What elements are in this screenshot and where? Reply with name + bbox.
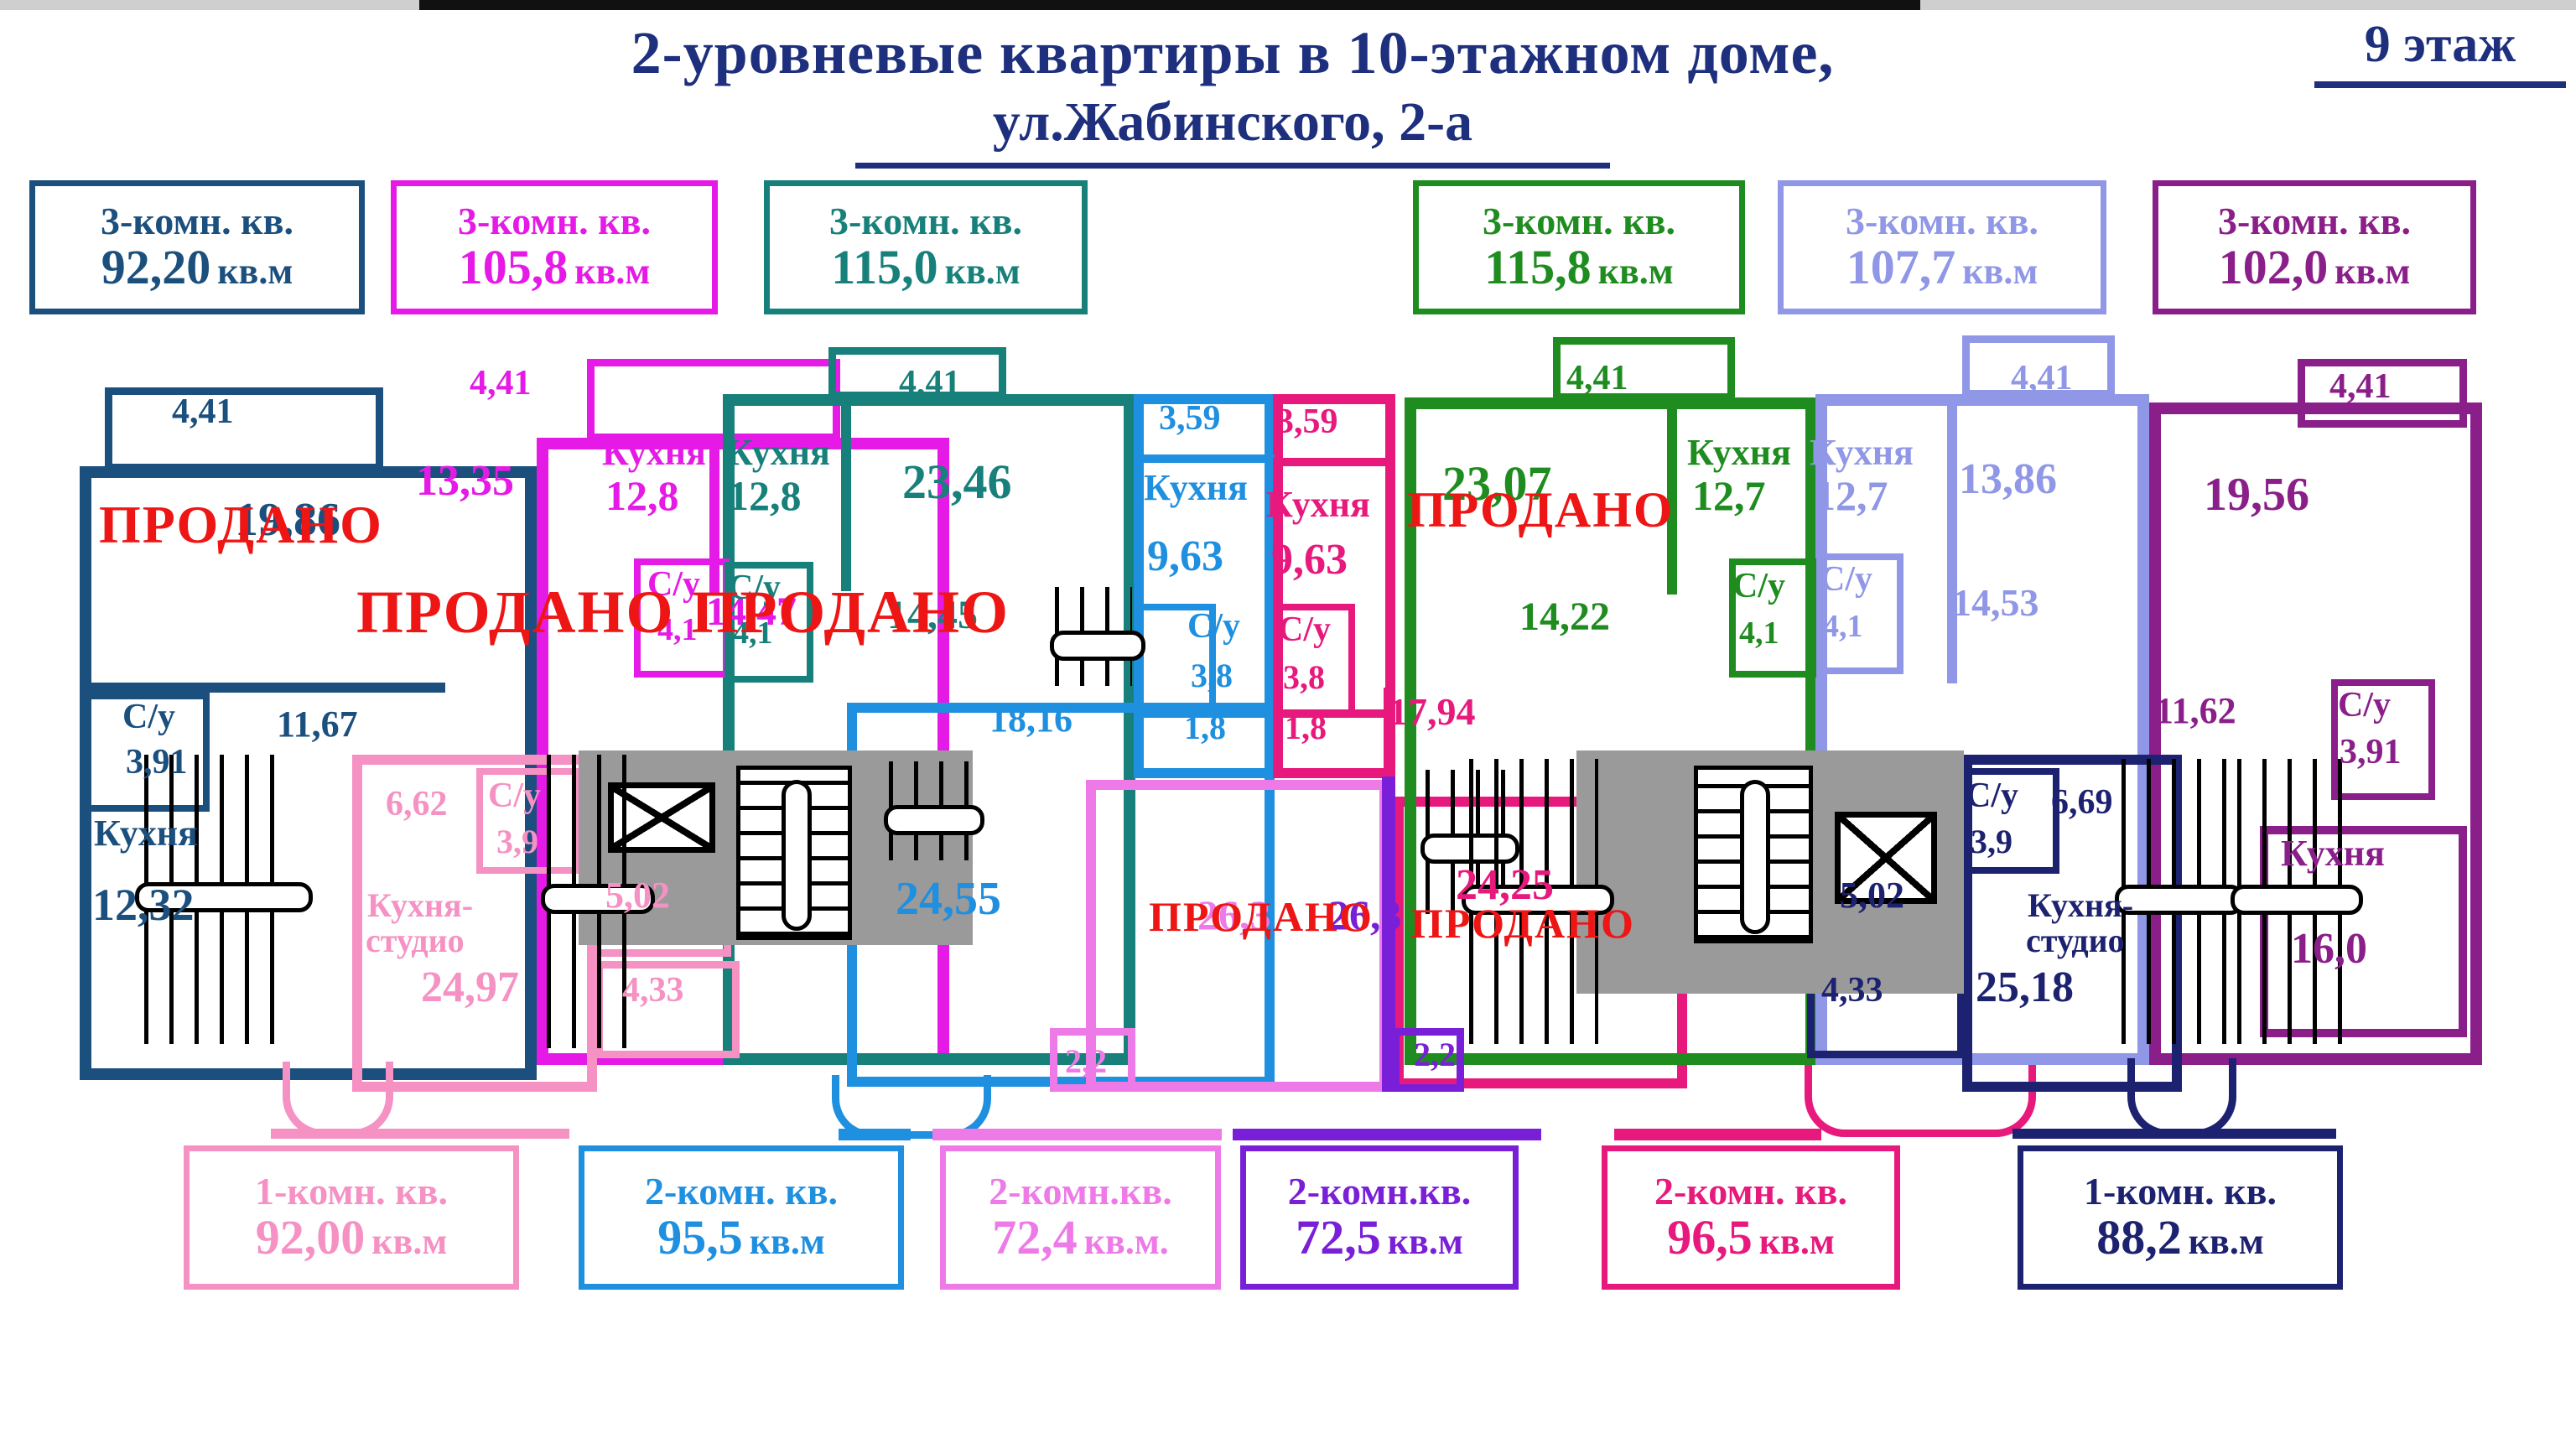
staircase-icon xyxy=(2237,759,2348,1044)
page-title-line2: ул.Жабинского, 2-а xyxy=(855,91,1610,169)
card-type: 3-комн. кв. xyxy=(1846,201,2038,241)
page-title-line1: 2-уровневые квартиры в 10-этажном доме, xyxy=(520,18,1945,88)
legend-card-1room-right: 1-комн. кв. 88,2кв.м xyxy=(2018,1145,2343,1290)
card-unit: кв.м xyxy=(2334,251,2410,292)
room-name-label: С/у xyxy=(1820,562,1872,597)
room-area-label: 12,8 xyxy=(728,475,802,517)
handrail xyxy=(2115,885,2243,915)
facade-line xyxy=(2012,1129,2336,1139)
card-area: 92,20 xyxy=(101,240,211,294)
card-type: 3-комн. кв. xyxy=(101,201,293,241)
room-area-label: 3,8 xyxy=(1283,661,1325,694)
card-type: 1-комн. кв. xyxy=(255,1171,448,1212)
facade-line xyxy=(1614,1129,1821,1140)
room-name-label: С/у xyxy=(1966,778,2018,813)
card-type: 2-комн. кв. xyxy=(1654,1171,1847,1212)
room-area-label: 19,56 xyxy=(2204,471,2309,518)
room-name-label: студио xyxy=(366,924,465,958)
room-name-label: Кухня xyxy=(1144,470,1248,506)
room-area-label: 6,62 xyxy=(386,787,448,822)
room-area-label: 9,63 xyxy=(1271,538,1348,582)
room-name-label: С/у xyxy=(488,778,541,813)
card-type: 3-комн. кв. xyxy=(2218,201,2411,241)
facade-line xyxy=(271,1129,569,1139)
legend-card-2room-4: 2-комн. кв. 96,5кв.м xyxy=(1602,1145,1900,1290)
bay-window xyxy=(2127,1058,2236,1137)
room-area-label: 18,16 xyxy=(989,701,1072,738)
sold-overlay: ПРОДАНО xyxy=(1149,896,1374,937)
room-area-label: 4,41 xyxy=(2011,361,2073,396)
room-area-label: 4,33 xyxy=(622,973,684,1008)
handrail xyxy=(2231,885,2363,915)
staircase-icon xyxy=(889,761,971,860)
card-unit: кв.м xyxy=(1388,1221,1463,1262)
card-unit: кв.м xyxy=(945,251,1021,292)
room-area-label: 11,67 xyxy=(277,706,358,743)
room-area-label: 12,32 xyxy=(92,882,195,927)
staircase-icon xyxy=(2122,759,2229,1044)
room-area-label: 1,8 xyxy=(1184,711,1226,745)
card-unit: кв.м xyxy=(2189,1221,2264,1262)
card-unit: кв.м xyxy=(1598,251,1674,292)
card-area: 102,0 xyxy=(2219,240,2329,294)
staircase-icon xyxy=(1055,587,1132,686)
legend-card-3room-3: 3-комн. кв. 115,0кв.м xyxy=(764,180,1088,314)
wall xyxy=(90,683,445,693)
sold-overlay: ПРОДАНО ПРОДАНО xyxy=(356,582,1010,642)
room-area-label: 4,41 xyxy=(470,366,532,401)
card-type: 3-комн. кв. xyxy=(1483,201,1675,241)
sold-overlay: ПРОДАНО xyxy=(1407,485,1675,535)
room-area-label: 12,7 xyxy=(1692,475,1766,517)
room-area-label: 4,41 xyxy=(899,366,961,401)
legend-card-3room-2: 3-комн. кв. 105,8кв.м xyxy=(391,180,718,314)
wall xyxy=(1134,454,1275,463)
card-type: 2-комн.кв. xyxy=(1288,1171,1472,1212)
room-area-label: 14,22 xyxy=(1519,597,1610,637)
card-unit: кв.м xyxy=(371,1221,447,1262)
room-area-label: 3,9 xyxy=(496,825,538,859)
room-name-label: Кухня xyxy=(1687,434,1791,471)
room-area-label: 24,97 xyxy=(421,966,519,1010)
room-area-label: 23,46 xyxy=(902,458,1012,506)
legend-card-2room-3: 2-комн.кв. 72,5кв.м xyxy=(1240,1145,1519,1290)
room-name-label: Кухня xyxy=(2281,835,2385,872)
facade-line xyxy=(932,1129,1222,1140)
room-area-label: 24,55 xyxy=(896,875,1001,922)
room-area-label: 17,94 xyxy=(1389,693,1476,731)
room-area-label: 4,41 xyxy=(1566,361,1628,396)
card-area: 95,5 xyxy=(657,1210,743,1265)
wall xyxy=(1273,458,1395,466)
facade-line xyxy=(1233,1129,1541,1140)
wall xyxy=(1947,394,1957,683)
card-unit: кв.м xyxy=(574,251,650,292)
room-name-label: Кухня xyxy=(1266,486,1370,523)
room-name-label: Кухня xyxy=(94,815,198,852)
room-area-label: 5,02 xyxy=(1840,877,1904,914)
card-area: 115,0 xyxy=(831,240,937,294)
room-name-label: Кухня xyxy=(1810,434,1914,471)
card-unit: кв.м xyxy=(217,251,293,292)
card-type: 3-комн. кв. xyxy=(829,201,1022,241)
card-unit: кв.м. xyxy=(1084,1221,1169,1262)
handrail xyxy=(1050,631,1145,661)
card-type: 3-комн. кв. xyxy=(458,201,651,241)
room-area-label: 3,59 xyxy=(1276,404,1338,439)
room-area-label: 4,41 xyxy=(172,394,234,429)
facade-line xyxy=(839,1129,911,1140)
sold-overlay: ПРОДАНО xyxy=(99,498,383,552)
room-name-label: С/у xyxy=(2338,688,2391,723)
sold-overlay: ПРОДАНО xyxy=(1410,902,1635,944)
room-name-label: С/у xyxy=(122,699,175,735)
card-unit: кв.м xyxy=(1759,1221,1835,1262)
card-type: 2-комн. кв. xyxy=(645,1171,838,1212)
card-type: 2-комн.кв. xyxy=(989,1171,1172,1212)
room-name-label: С/у xyxy=(1187,609,1240,644)
card-area: 92,00 xyxy=(256,1210,366,1265)
staircase-icon xyxy=(736,766,852,940)
room-area-label: 4,33 xyxy=(1821,973,1883,1008)
room-area-label: 1,8 xyxy=(1285,711,1327,745)
card-area: 107,7 xyxy=(1846,240,1956,294)
wall xyxy=(841,394,851,591)
room-area-label: 13,86 xyxy=(1959,458,2057,501)
room-area-label: 2,2 xyxy=(1065,1045,1107,1078)
handrail xyxy=(1740,780,1770,934)
room-name-label: Кухня xyxy=(726,434,830,471)
room-area-label: 6,69 xyxy=(2051,785,2113,820)
card-unit: кв.м xyxy=(750,1221,825,1262)
room-area-label: 12,7 xyxy=(1815,475,1888,517)
handrail xyxy=(782,780,812,931)
room-area-label: 3,59 xyxy=(1159,401,1221,436)
room-area-label: 4,41 xyxy=(2329,369,2392,404)
room-area-label: 3,8 xyxy=(1191,659,1233,693)
room-area-label: 9,63 xyxy=(1147,535,1223,579)
top-scan-strip-dark xyxy=(419,0,1920,10)
room-name-label: Кухня- xyxy=(367,889,473,922)
card-type: 1-комн. кв. xyxy=(2084,1171,2277,1212)
room-name-label: студио xyxy=(2026,924,2125,958)
balcony-4-41-outline xyxy=(105,387,383,471)
room-area-label: 13,35 xyxy=(416,460,514,503)
legend-card-1room-left: 1-комн. кв. 92,00кв.м xyxy=(184,1145,519,1290)
room-area-label: 14,53 xyxy=(1952,584,2039,622)
handrail xyxy=(884,805,984,835)
card-area: 72,5 xyxy=(1296,1210,1381,1265)
card-unit: кв.м xyxy=(1962,251,2038,292)
room-name-label: С/у xyxy=(1732,569,1785,604)
room-name-label: Кухня xyxy=(602,434,706,471)
room-area-label: 4,1 xyxy=(1823,610,1863,642)
room-name-label: С/у xyxy=(1278,612,1331,647)
floor-number-label: 9 этаж xyxy=(2314,15,2566,88)
card-area: 105,8 xyxy=(459,240,569,294)
room-name-label: Кухня- xyxy=(2028,889,2133,922)
room-area-label: 4,1 xyxy=(1739,617,1779,649)
room-area-label: 25,18 xyxy=(1976,966,2074,1010)
staircase-icon xyxy=(1694,766,1813,943)
legend-card-3room-4: 3-комн. кв. 115,8кв.м xyxy=(1413,180,1745,314)
card-area: 72,4 xyxy=(992,1210,1078,1265)
legend-card-3room-6: 3-комн. кв. 102,0кв.м xyxy=(2153,180,2476,314)
room-area-label: 5,02 xyxy=(605,877,670,914)
room-area-label: 3,91 xyxy=(2340,735,2402,770)
legend-card-3room-1: 3-комн. кв. 92,20кв.м xyxy=(29,180,365,314)
floorplan-page: 2-уровневые квартиры в 10-этажном доме, … xyxy=(0,0,2576,1449)
card-area: 88,2 xyxy=(2096,1210,2182,1265)
legend-card-2room-1: 2-комн. кв. 95,5кв.м xyxy=(579,1145,904,1290)
room-area-label: 3,9 xyxy=(1971,825,2012,859)
room-area-label: 12,8 xyxy=(605,475,679,517)
card-area: 96,5 xyxy=(1667,1210,1753,1265)
bay-window xyxy=(283,1062,393,1137)
room-area-label: 11,62 xyxy=(2155,693,2236,730)
legend-card-3room-5: 3-комн. кв. 107,7кв.м xyxy=(1778,180,2106,314)
room-area-label: 16,0 xyxy=(2291,927,2367,971)
room-area-label: 3,91 xyxy=(126,745,188,780)
legend-card-2room-2: 2-комн.кв. 72,4кв.м. xyxy=(940,1145,1221,1290)
room-area-label: 2,2 xyxy=(1414,1038,1456,1072)
card-area: 115,8 xyxy=(1484,240,1591,294)
